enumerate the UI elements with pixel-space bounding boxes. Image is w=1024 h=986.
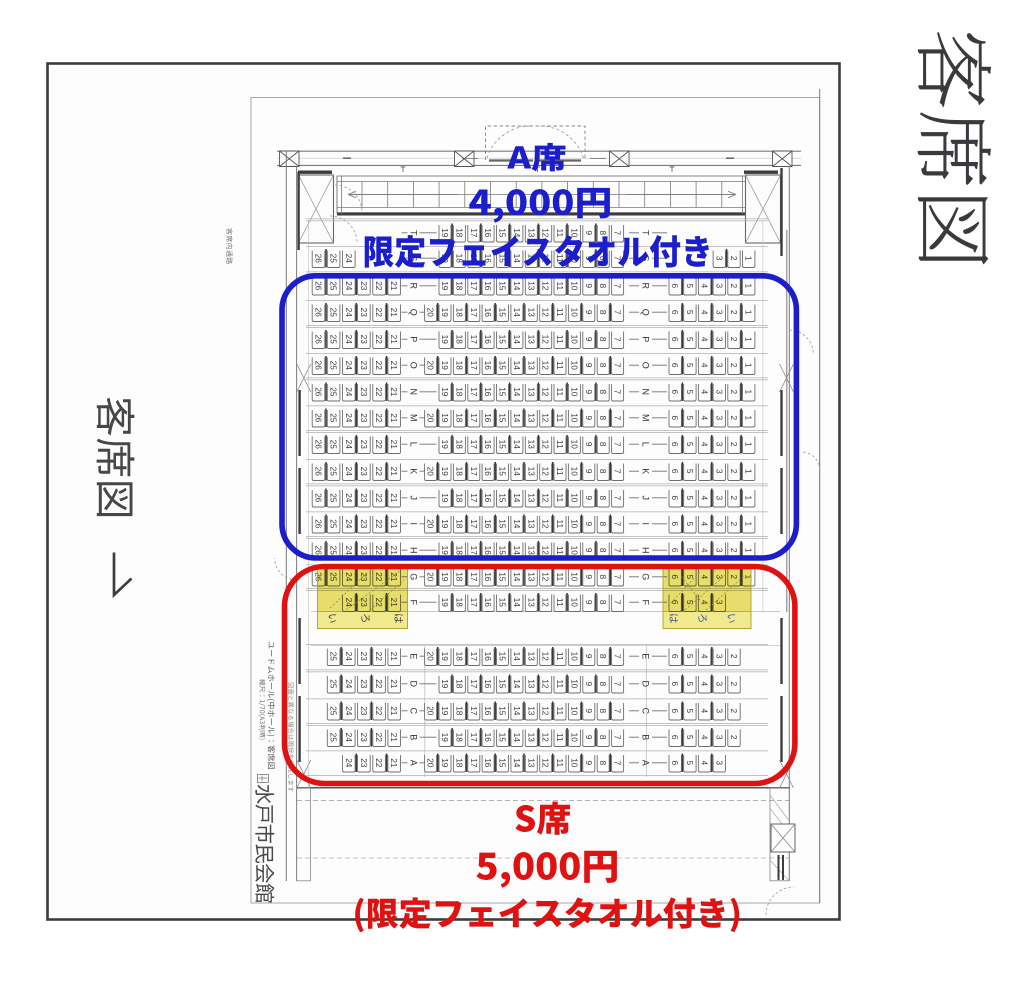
svg-text:14: 14 <box>512 413 522 423</box>
svg-text:2: 2 <box>729 415 739 420</box>
svg-text:24: 24 <box>344 335 354 345</box>
svg-text:16: 16 <box>483 335 493 345</box>
svg-text:10: 10 <box>569 679 579 689</box>
svg-text:18: 18 <box>454 440 464 450</box>
svg-text:11: 11 <box>555 519 565 528</box>
svg-text:7: 7 <box>613 760 623 765</box>
svg-text:22: 22 <box>374 308 384 318</box>
svg-text:11: 11 <box>555 335 565 344</box>
svg-text:14: 14 <box>512 467 522 477</box>
svg-text:3: 3 <box>714 548 724 553</box>
svg-text:4: 4 <box>700 760 710 765</box>
svg-text:6: 6 <box>670 442 680 447</box>
svg-text:11: 11 <box>555 228 565 237</box>
svg-text:6: 6 <box>670 708 680 713</box>
svg-text:24: 24 <box>344 308 354 318</box>
svg-text:24: 24 <box>344 413 354 423</box>
svg-text:3: 3 <box>714 363 724 368</box>
svg-text:25: 25 <box>329 519 339 529</box>
svg-text:19: 19 <box>440 546 450 556</box>
svg-text:10: 10 <box>569 413 579 423</box>
svg-text:14: 14 <box>512 308 522 318</box>
svg-text:18: 18 <box>454 652 464 662</box>
svg-text:6: 6 <box>670 548 680 553</box>
svg-text:22: 22 <box>374 706 384 716</box>
svg-text:9: 9 <box>584 574 594 579</box>
svg-text:1: 1 <box>744 310 754 315</box>
svg-text:16: 16 <box>483 519 493 529</box>
svg-text:22: 22 <box>374 733 384 743</box>
svg-text:17: 17 <box>469 493 479 503</box>
svg-text:7: 7 <box>613 495 623 500</box>
svg-text:23: 23 <box>359 335 369 345</box>
svg-text:10: 10 <box>569 440 579 450</box>
svg-text:20: 20 <box>426 308 436 318</box>
svg-text:18: 18 <box>454 679 464 689</box>
svg-text:19: 19 <box>440 519 450 529</box>
svg-text:5: 5 <box>685 521 695 526</box>
svg-text:22: 22 <box>374 652 384 662</box>
svg-text:18: 18 <box>454 519 464 529</box>
svg-text:22: 22 <box>374 335 384 345</box>
svg-text:M: M <box>409 414 419 422</box>
svg-text:23: 23 <box>359 706 369 716</box>
svg-text:13: 13 <box>526 572 536 582</box>
svg-text:21: 21 <box>389 440 399 450</box>
svg-text:6: 6 <box>670 681 680 686</box>
svg-text:17: 17 <box>469 733 479 743</box>
svg-text:9: 9 <box>584 389 594 394</box>
svg-text:7: 7 <box>613 600 623 605</box>
svg-text:4: 4 <box>700 708 710 713</box>
svg-text:12: 12 <box>541 546 551 556</box>
svg-text:3: 3 <box>714 337 724 342</box>
svg-text:B: B <box>641 734 651 740</box>
svg-text:1: 1 <box>744 495 754 500</box>
svg-text:15: 15 <box>498 387 508 397</box>
svg-text:6: 6 <box>670 389 680 394</box>
svg-text:19: 19 <box>440 308 450 318</box>
svg-text:12: 12 <box>541 519 551 529</box>
svg-text:17: 17 <box>469 440 479 450</box>
svg-text:20: 20 <box>426 361 436 371</box>
svg-text:10: 10 <box>569 706 579 716</box>
svg-text:24: 24 <box>344 254 354 264</box>
svg-text:19: 19 <box>440 679 450 689</box>
svg-text:8: 8 <box>598 760 608 765</box>
svg-text:17: 17 <box>469 652 479 662</box>
svg-text:5: 5 <box>685 681 695 686</box>
svg-text:7: 7 <box>613 337 623 342</box>
svg-text:25: 25 <box>329 413 339 423</box>
svg-text:5: 5 <box>685 310 695 315</box>
svg-text:15: 15 <box>498 706 508 716</box>
svg-text:21: 21 <box>389 493 399 503</box>
svg-text:L: L <box>641 442 651 447</box>
svg-text:19: 19 <box>440 335 450 345</box>
svg-text:R: R <box>641 283 651 290</box>
svg-text:14: 14 <box>512 519 522 529</box>
svg-text:12: 12 <box>541 758 551 768</box>
svg-text:3: 3 <box>714 708 724 713</box>
svg-text:12: 12 <box>541 493 551 503</box>
svg-text:21: 21 <box>389 281 399 291</box>
svg-text:6: 6 <box>670 654 680 659</box>
svg-text:21: 21 <box>389 546 399 556</box>
svg-text:11: 11 <box>555 361 565 370</box>
svg-text:10: 10 <box>569 493 579 503</box>
svg-text:12: 12 <box>541 228 551 238</box>
svg-text:18: 18 <box>454 467 464 477</box>
svg-text:3: 3 <box>714 310 724 315</box>
svg-text:18: 18 <box>454 733 464 743</box>
svg-text:21: 21 <box>389 679 399 689</box>
svg-text:20: 20 <box>426 413 436 423</box>
svg-text:17: 17 <box>469 519 479 529</box>
svg-text:24: 24 <box>344 706 354 716</box>
svg-text:15: 15 <box>498 335 508 345</box>
svg-text:9: 9 <box>584 283 594 288</box>
svg-text:7: 7 <box>613 283 623 288</box>
svg-text:13: 13 <box>526 733 536 743</box>
svg-text:6: 6 <box>670 283 680 288</box>
svg-text:25: 25 <box>329 308 339 318</box>
svg-text:26: 26 <box>314 387 324 397</box>
svg-text:J: J <box>409 496 419 501</box>
svg-text:25: 25 <box>329 546 339 556</box>
svg-text:20: 20 <box>426 519 436 529</box>
svg-text:24: 24 <box>344 467 354 477</box>
svg-text:13: 13 <box>526 706 536 716</box>
svg-text:13: 13 <box>526 519 536 529</box>
svg-text:15: 15 <box>498 679 508 689</box>
svg-text:10: 10 <box>569 281 579 291</box>
svg-text:2: 2 <box>729 283 739 288</box>
svg-text:9: 9 <box>584 310 594 315</box>
svg-text:1: 1 <box>744 337 754 342</box>
svg-text:24: 24 <box>344 440 354 450</box>
svg-text:26: 26 <box>314 519 324 529</box>
svg-text:8: 8 <box>598 363 608 368</box>
svg-text:21: 21 <box>389 758 399 768</box>
svg-text:5: 5 <box>685 654 695 659</box>
svg-text:3: 3 <box>714 442 724 447</box>
svg-text:9: 9 <box>584 363 594 368</box>
svg-text:T: T <box>641 230 651 236</box>
svg-text:2: 2 <box>729 363 739 368</box>
svg-text:3: 3 <box>714 469 724 474</box>
svg-text:16: 16 <box>483 652 493 662</box>
svg-text:9: 9 <box>584 681 594 686</box>
svg-text:9: 9 <box>584 469 594 474</box>
svg-text:13: 13 <box>526 598 536 608</box>
svg-text:7: 7 <box>613 574 623 579</box>
svg-text:5: 5 <box>685 495 695 500</box>
svg-text:24: 24 <box>344 652 354 662</box>
svg-text:12: 12 <box>541 706 551 716</box>
svg-text:E: E <box>641 653 651 659</box>
svg-text:12: 12 <box>541 413 551 423</box>
svg-text:8: 8 <box>598 469 608 474</box>
svg-text:17: 17 <box>469 228 479 238</box>
svg-text:17: 17 <box>469 335 479 345</box>
svg-text:10: 10 <box>569 228 579 238</box>
svg-text:2: 2 <box>729 256 739 261</box>
svg-text:11: 11 <box>555 652 565 661</box>
svg-text:18: 18 <box>454 572 464 582</box>
svg-text:24: 24 <box>344 733 354 743</box>
svg-text:23: 23 <box>359 493 369 503</box>
svg-text:10: 10 <box>569 467 579 477</box>
svg-text:19: 19 <box>440 706 450 716</box>
svg-text:13: 13 <box>526 308 536 318</box>
svg-text:17: 17 <box>469 467 479 477</box>
svg-text:15: 15 <box>498 572 508 582</box>
svg-text:M: M <box>641 414 651 422</box>
svg-text:26: 26 <box>314 254 324 264</box>
svg-text:3: 3 <box>714 495 724 500</box>
svg-text:2: 2 <box>729 469 739 474</box>
svg-text:13: 13 <box>526 467 536 477</box>
svg-text:11: 11 <box>555 598 565 607</box>
svg-text:13: 13 <box>526 679 536 689</box>
svg-text:13: 13 <box>526 413 536 423</box>
svg-text:24: 24 <box>344 361 354 371</box>
svg-text:9: 9 <box>584 415 594 420</box>
svg-text:A: A <box>641 760 651 766</box>
svg-text:23: 23 <box>359 308 369 318</box>
svg-text:8: 8 <box>598 574 608 579</box>
svg-text:13: 13 <box>526 546 536 556</box>
svg-text:9: 9 <box>584 442 594 447</box>
svg-text:8: 8 <box>598 389 608 394</box>
svg-text:5: 5 <box>685 708 695 713</box>
svg-text:23: 23 <box>359 413 369 423</box>
svg-text:15: 15 <box>498 467 508 477</box>
svg-text:6: 6 <box>670 469 680 474</box>
svg-text:17: 17 <box>469 679 479 689</box>
svg-text:12: 12 <box>541 281 551 291</box>
svg-text:24: 24 <box>344 281 354 291</box>
svg-text:21: 21 <box>389 519 399 529</box>
svg-text:1: 1 <box>744 469 754 474</box>
svg-text:6: 6 <box>670 521 680 526</box>
svg-text:16: 16 <box>483 281 493 291</box>
svg-text:11: 11 <box>555 493 565 502</box>
svg-text:15: 15 <box>498 758 508 768</box>
svg-text:13: 13 <box>526 335 536 345</box>
svg-text:4: 4 <box>700 310 710 315</box>
svg-text:2: 2 <box>729 548 739 553</box>
svg-text:24: 24 <box>344 519 354 529</box>
svg-text:22: 22 <box>374 519 384 529</box>
svg-text:9: 9 <box>584 548 594 553</box>
svg-text:25: 25 <box>329 706 339 716</box>
svg-text:7: 7 <box>613 708 623 713</box>
svg-text:2: 2 <box>729 735 739 740</box>
svg-text:4: 4 <box>700 495 710 500</box>
svg-text:17: 17 <box>469 361 479 371</box>
svg-text:15: 15 <box>498 281 508 291</box>
svg-text:25: 25 <box>329 679 339 689</box>
svg-text:19: 19 <box>440 228 450 238</box>
svg-text:10: 10 <box>569 546 579 556</box>
svg-text:8: 8 <box>598 521 608 526</box>
svg-text:14: 14 <box>512 546 522 556</box>
svg-text:1: 1 <box>744 521 754 526</box>
svg-text:21: 21 <box>389 308 399 318</box>
svg-text:22: 22 <box>374 546 384 556</box>
svg-text:23: 23 <box>359 467 369 477</box>
svg-text:11: 11 <box>555 413 565 422</box>
svg-text:26: 26 <box>314 335 324 345</box>
svg-text:12: 12 <box>541 733 551 743</box>
svg-text:20: 20 <box>426 706 436 716</box>
svg-text:7: 7 <box>613 548 623 553</box>
svg-text:4: 4 <box>700 681 710 686</box>
svg-text:17: 17 <box>469 758 479 768</box>
svg-text:25: 25 <box>329 387 339 397</box>
svg-text:13: 13 <box>526 440 536 450</box>
svg-text:4: 4 <box>700 283 710 288</box>
svg-text:14: 14 <box>512 758 522 768</box>
svg-text:13: 13 <box>526 361 536 371</box>
svg-text:17: 17 <box>469 546 479 556</box>
svg-text:4: 4 <box>700 469 710 474</box>
svg-text:1: 1 <box>744 442 754 447</box>
svg-text:5: 5 <box>685 363 695 368</box>
svg-text:21: 21 <box>389 387 399 397</box>
svg-text:9: 9 <box>584 708 594 713</box>
svg-text:16: 16 <box>483 546 493 556</box>
svg-text:15: 15 <box>498 519 508 529</box>
svg-text:18: 18 <box>454 308 464 318</box>
svg-text:3: 3 <box>714 256 724 261</box>
svg-text:25: 25 <box>329 652 339 662</box>
svg-text:23: 23 <box>359 758 369 768</box>
svg-text:7: 7 <box>613 310 623 315</box>
svg-text:P: P <box>409 336 419 342</box>
svg-text:11: 11 <box>555 387 565 396</box>
svg-text:13: 13 <box>526 228 536 238</box>
svg-text:25: 25 <box>329 254 339 264</box>
svg-text:21: 21 <box>389 652 399 662</box>
svg-text:19: 19 <box>440 598 450 608</box>
svg-text:22: 22 <box>374 467 384 477</box>
svg-text:6: 6 <box>670 735 680 740</box>
svg-text:19: 19 <box>440 652 450 662</box>
svg-text:2: 2 <box>729 310 739 315</box>
svg-text:5: 5 <box>685 469 695 474</box>
svg-text:9: 9 <box>584 735 594 740</box>
svg-text:26: 26 <box>314 440 324 450</box>
svg-text:12: 12 <box>541 308 551 318</box>
svg-text:22: 22 <box>374 440 384 450</box>
svg-text:5: 5 <box>685 337 695 342</box>
svg-text:12: 12 <box>541 387 551 397</box>
svg-text:24: 24 <box>344 387 354 397</box>
svg-text:26: 26 <box>314 413 324 423</box>
svg-text:19: 19 <box>440 361 450 371</box>
svg-text:23: 23 <box>359 361 369 371</box>
svg-text:18: 18 <box>454 281 464 291</box>
svg-text:21: 21 <box>389 706 399 716</box>
svg-text:15: 15 <box>498 652 508 662</box>
svg-text:E: E <box>409 653 419 659</box>
svg-text:17: 17 <box>469 572 479 582</box>
svg-text:16: 16 <box>483 361 493 371</box>
svg-text:B: B <box>409 734 419 740</box>
svg-text:16: 16 <box>483 228 493 238</box>
svg-text:11: 11 <box>555 467 565 476</box>
svg-text:13: 13 <box>526 652 536 662</box>
svg-text:21: 21 <box>389 361 399 371</box>
svg-text:7: 7 <box>613 521 623 526</box>
svg-text:2: 2 <box>729 495 739 500</box>
svg-text:18: 18 <box>454 546 464 556</box>
svg-text:14: 14 <box>512 733 522 743</box>
svg-text:26: 26 <box>314 281 324 291</box>
svg-text:9: 9 <box>584 654 594 659</box>
svg-text:22: 22 <box>374 281 384 291</box>
svg-text:8: 8 <box>598 735 608 740</box>
svg-text:3: 3 <box>714 681 724 686</box>
svg-text:16: 16 <box>483 598 493 608</box>
svg-text:6: 6 <box>670 310 680 315</box>
svg-text:23: 23 <box>359 440 369 450</box>
svg-text:Q: Q <box>641 309 651 316</box>
svg-text:24: 24 <box>344 493 354 503</box>
svg-text:23: 23 <box>359 519 369 529</box>
svg-text:19: 19 <box>440 281 450 291</box>
svg-text:10: 10 <box>569 733 579 743</box>
svg-text:15: 15 <box>498 440 508 450</box>
svg-text:13: 13 <box>526 758 536 768</box>
svg-text:18: 18 <box>454 493 464 503</box>
svg-text:14: 14 <box>512 281 522 291</box>
svg-text:15: 15 <box>498 361 508 371</box>
svg-text:3: 3 <box>714 389 724 394</box>
svg-text:5: 5 <box>685 735 695 740</box>
svg-text:12: 12 <box>541 467 551 477</box>
svg-text:13: 13 <box>526 493 536 503</box>
svg-text:10: 10 <box>569 361 579 371</box>
svg-text:16: 16 <box>483 679 493 689</box>
svg-text:21: 21 <box>389 335 399 345</box>
svg-text:21: 21 <box>389 733 399 743</box>
svg-text:16: 16 <box>483 706 493 716</box>
svg-text:11: 11 <box>555 546 565 555</box>
svg-text:G: G <box>641 573 651 580</box>
svg-text:8: 8 <box>598 310 608 315</box>
svg-text:26: 26 <box>314 467 324 477</box>
svg-text:18: 18 <box>454 335 464 345</box>
svg-text:5: 5 <box>685 389 695 394</box>
svg-text:15: 15 <box>498 413 508 423</box>
svg-text:4: 4 <box>700 415 710 420</box>
svg-text:7: 7 <box>613 654 623 659</box>
svg-text:11: 11 <box>555 706 565 715</box>
svg-text:11: 11 <box>555 308 565 317</box>
svg-text:3: 3 <box>714 654 724 659</box>
svg-text:14: 14 <box>512 335 522 345</box>
svg-text:9: 9 <box>584 760 594 765</box>
svg-text:H: H <box>409 547 419 554</box>
svg-text:24: 24 <box>344 758 354 768</box>
svg-text:22: 22 <box>374 387 384 397</box>
svg-text:11: 11 <box>555 733 565 742</box>
svg-text:22: 22 <box>374 361 384 371</box>
